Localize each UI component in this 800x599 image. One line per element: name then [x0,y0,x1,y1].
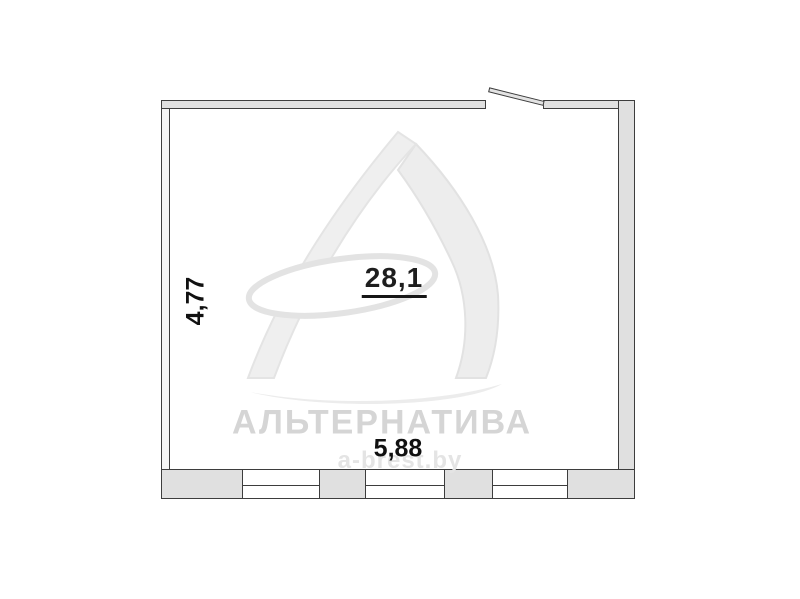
wall-top-left-segment [161,100,486,109]
window [492,469,568,499]
dimension-height-label: 4,77 [182,277,211,326]
room-area-label: 28,1 [362,262,427,298]
watermark-sail-logo-icon [228,108,520,408]
wall-right [618,100,635,499]
dimension-width-label: 5,88 [374,435,423,464]
floor-plan-canvas: АЛЬТЕРНАТИВА a-brest.by 28,1 5,88 4,77 [0,0,800,599]
wall-left [161,100,170,499]
door-leaf-icon [488,87,545,106]
window [242,469,320,499]
